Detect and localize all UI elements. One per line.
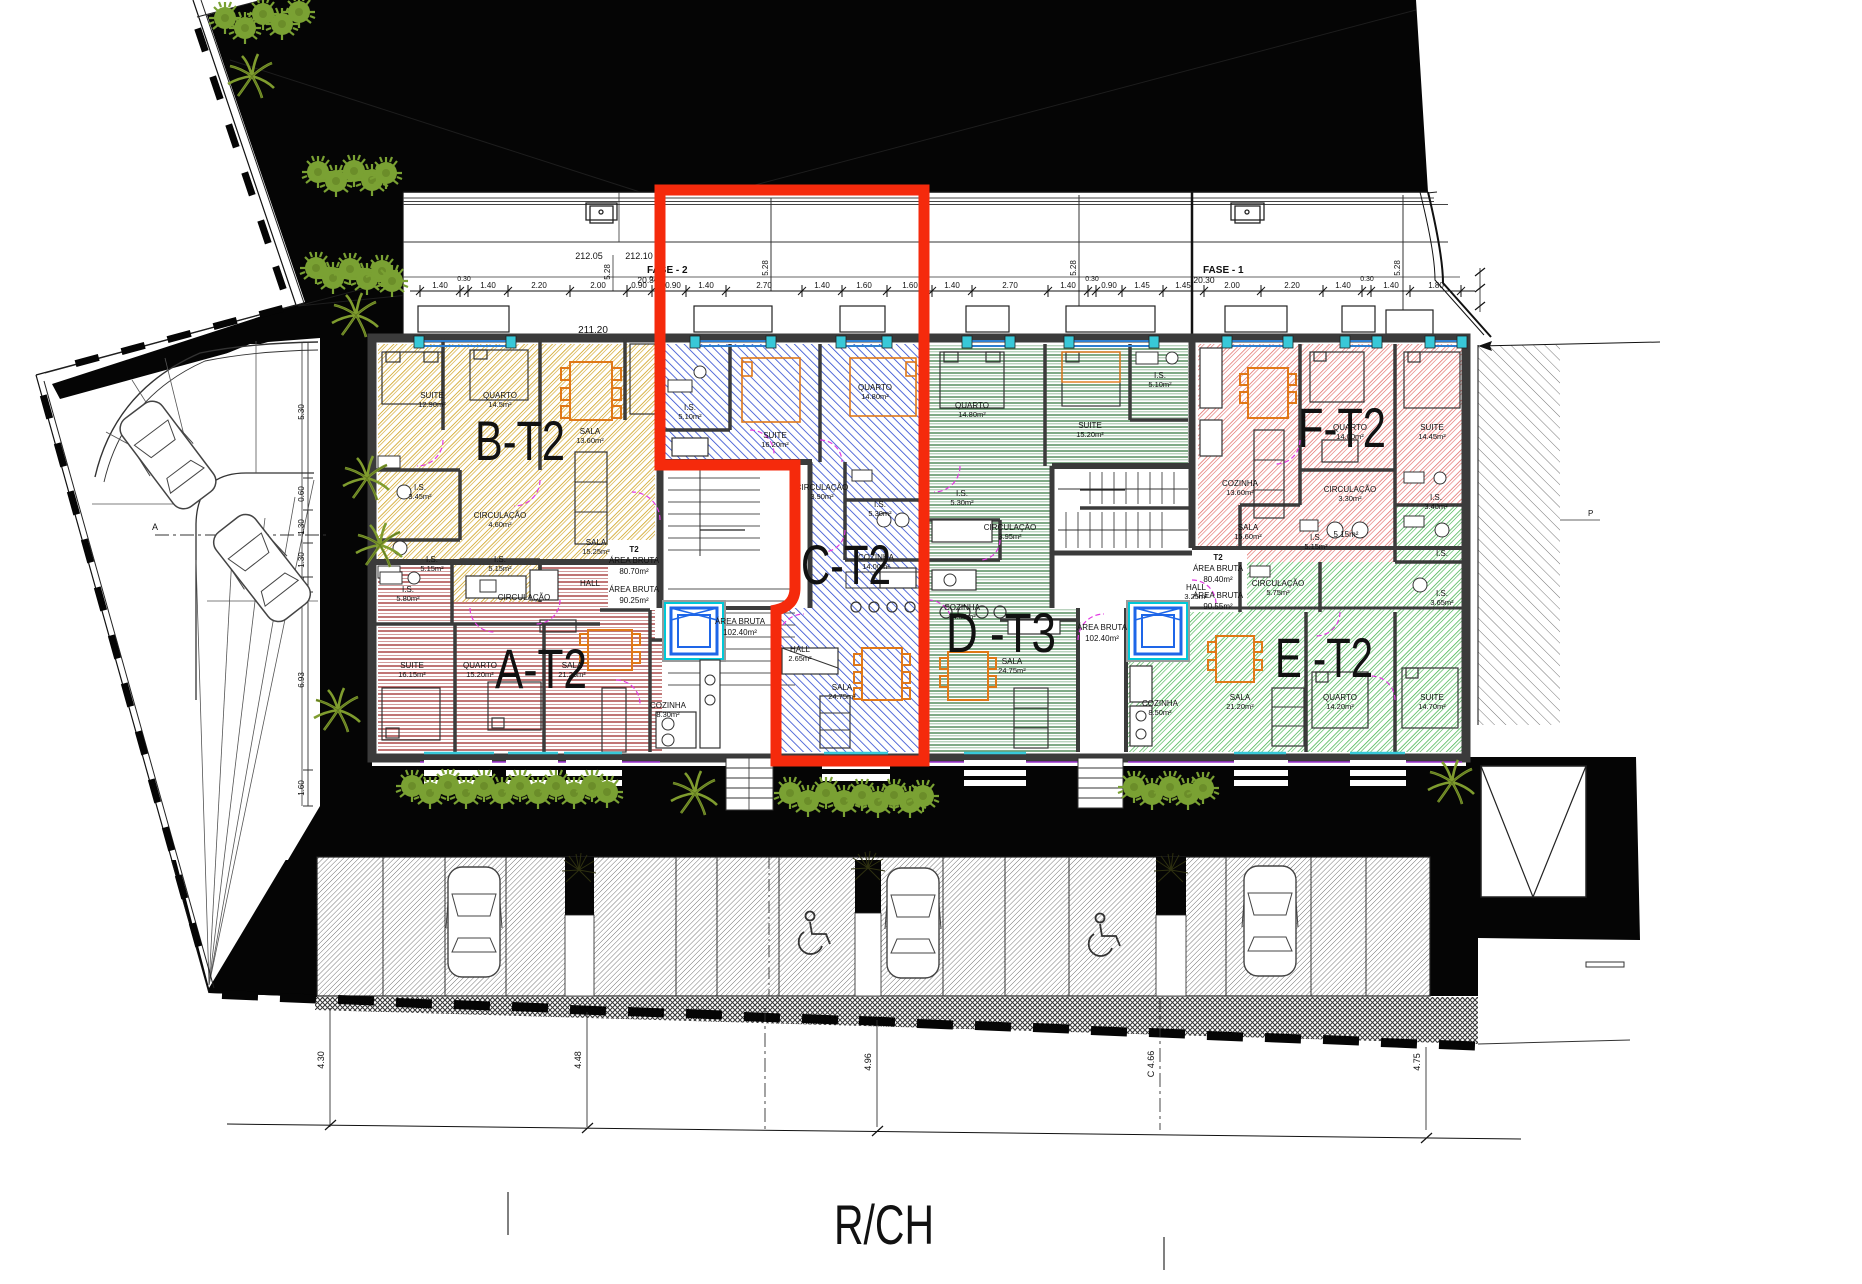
- svg-text:1.45: 1.45: [1134, 281, 1150, 290]
- svg-text:1.60: 1.60: [902, 281, 918, 290]
- svg-text:15.25m²: 15.25m²: [582, 547, 610, 556]
- svg-text:5.10m²: 5.10m²: [678, 412, 702, 421]
- svg-text:I.S.: I.S.: [684, 403, 696, 412]
- svg-text:QUARTO: QUARTO: [483, 391, 517, 400]
- svg-text:0.30: 0.30: [1085, 276, 1099, 283]
- svg-text:1.40: 1.40: [1335, 281, 1351, 290]
- svg-text:ÁREA BRUTA: ÁREA BRUTA: [715, 617, 766, 626]
- svg-text:1.40: 1.40: [814, 281, 830, 290]
- svg-text:ÁREA BRUTA: ÁREA BRUTA: [1193, 564, 1244, 573]
- svg-text:14.5m²: 14.5m²: [488, 400, 512, 409]
- svg-text:HALL: HALL: [580, 579, 601, 588]
- svg-text:1.60: 1.60: [856, 281, 872, 290]
- svg-text:4.60m²: 4.60m²: [488, 520, 512, 529]
- svg-text:1.40: 1.40: [1383, 281, 1399, 290]
- svg-text:24.75m²: 24.75m²: [828, 692, 856, 701]
- svg-text:SALA: SALA: [586, 538, 607, 547]
- svg-text:R/CH: R/CH: [834, 1193, 934, 1256]
- svg-text:212.05: 212.05: [575, 251, 603, 261]
- svg-text:1.60: 1.60: [297, 780, 306, 796]
- svg-text:3.95m²: 3.95m²: [998, 532, 1022, 541]
- svg-text:SALA: SALA: [832, 683, 853, 692]
- svg-text:CIRCULAÇÃO: CIRCULAÇÃO: [1252, 579, 1304, 588]
- svg-text:ÁREA BRUTA: ÁREA BRUTA: [609, 585, 660, 594]
- svg-text:F-T2: F-T2: [1298, 396, 1386, 459]
- svg-text:B-T2: B-T2: [475, 409, 565, 472]
- svg-text:14.70m²: 14.70m²: [1418, 702, 1446, 711]
- svg-text:14.45m²: 14.45m²: [1418, 432, 1446, 441]
- svg-text:102.40m²: 102.40m²: [723, 628, 757, 637]
- svg-text:5.30m²: 5.30m²: [950, 498, 974, 507]
- svg-text:CIRCULAÇÃO: CIRCULAÇÃO: [796, 483, 848, 492]
- svg-text:1.80: 1.80: [1428, 281, 1444, 290]
- svg-text:A: A: [152, 522, 158, 532]
- svg-text:4.30: 4.30: [316, 1051, 326, 1069]
- svg-text:24.75m²: 24.75m²: [998, 666, 1026, 675]
- svg-text:0.30: 0.30: [457, 276, 471, 283]
- svg-text:5.15m²: 5.15m²: [420, 564, 444, 573]
- svg-text:5.28: 5.28: [603, 264, 612, 280]
- svg-text:13.60m²: 13.60m²: [576, 436, 604, 445]
- svg-text:3.90m²: 3.90m²: [810, 492, 834, 501]
- svg-text:5.15m²: 5.15m²: [488, 564, 512, 573]
- svg-text:2.70: 2.70: [756, 281, 772, 290]
- svg-text:4.96: 4.96: [863, 1053, 873, 1071]
- svg-text:212.10: 212.10: [625, 251, 653, 261]
- svg-text:CIRCULAÇÃO: CIRCULAÇÃO: [498, 593, 550, 602]
- svg-text:ÁREA BRUTA: ÁREA BRUTA: [609, 556, 660, 565]
- svg-text:1.40: 1.40: [480, 281, 496, 290]
- svg-text:A-T2: A-T2: [495, 637, 587, 700]
- svg-text:21.20m²: 21.20m²: [1226, 702, 1254, 711]
- svg-text:0.90: 0.90: [1101, 281, 1117, 290]
- svg-text:QUARTO: QUARTO: [955, 401, 989, 410]
- svg-text:1.30: 1.30: [297, 552, 306, 568]
- svg-text:COZINHA: COZINHA: [1142, 699, 1179, 708]
- svg-text:5.30: 5.30: [297, 404, 306, 420]
- svg-text:SALA: SALA: [580, 427, 601, 436]
- svg-text:I.S.: I.S.: [874, 500, 886, 509]
- svg-text:QUARTO: QUARTO: [1323, 693, 1357, 702]
- svg-text:2.20: 2.20: [531, 281, 547, 290]
- svg-text:SUITE: SUITE: [1420, 693, 1444, 702]
- svg-text:2.20: 2.20: [1284, 281, 1300, 290]
- svg-text:I.S.: I.S.: [1436, 589, 1448, 598]
- svg-text:I.S.: I.S.: [402, 585, 414, 594]
- svg-text:E -T2: E -T2: [1275, 626, 1373, 689]
- svg-text:SUITE: SUITE: [763, 431, 787, 440]
- svg-text:ÁREA BRUTA: ÁREA BRUTA: [1077, 623, 1128, 632]
- svg-text:P: P: [1588, 509, 1593, 518]
- svg-text:20.30: 20.30: [1193, 275, 1215, 285]
- svg-text:3.40m²: 3.40m²: [1424, 502, 1448, 511]
- svg-text:14.80m²: 14.80m²: [958, 410, 986, 419]
- svg-text:15.20m²: 15.20m²: [466, 670, 494, 679]
- svg-text:C-T2: C-T2: [801, 533, 891, 596]
- svg-text:15.20m²: 15.20m²: [1076, 430, 1104, 439]
- svg-text:5.28: 5.28: [761, 260, 770, 276]
- svg-text:I.S.: I.S.: [1310, 533, 1322, 542]
- svg-text:16.20m²: 16.20m²: [761, 440, 789, 449]
- svg-text:8.50m²: 8.50m²: [1148, 708, 1172, 717]
- svg-text:CIRCULAÇÃO: CIRCULAÇÃO: [984, 523, 1036, 532]
- svg-text:I.S.: I.S.: [494, 555, 506, 564]
- svg-text:0.60: 0.60: [297, 486, 306, 502]
- svg-text:I.S.: I.S.: [1436, 549, 1448, 558]
- svg-text:I.S.: I.S.: [414, 483, 426, 492]
- svg-text:SUITE: SUITE: [1078, 421, 1102, 430]
- svg-text:4.48: 4.48: [573, 1051, 583, 1069]
- svg-text:COZINHA: COZINHA: [1222, 479, 1259, 488]
- svg-text:HALL: HALL: [790, 645, 811, 654]
- svg-text:80.40m²: 80.40m²: [1203, 575, 1233, 584]
- svg-text:14.20m²: 14.20m²: [1326, 702, 1354, 711]
- svg-text:102.40m²: 102.40m²: [1085, 634, 1119, 643]
- svg-text:QUARTO: QUARTO: [858, 383, 892, 392]
- svg-text:1.40: 1.40: [432, 281, 448, 290]
- svg-text:2.70: 2.70: [1002, 281, 1018, 290]
- svg-text:5.30m²: 5.30m²: [868, 509, 892, 518]
- svg-text:SALA: SALA: [1230, 693, 1251, 702]
- svg-text:I.S.: I.S.: [1430, 493, 1442, 502]
- svg-text:HALL: HALL: [1186, 583, 1207, 592]
- svg-text:2.65m²: 2.65m²: [788, 654, 812, 663]
- svg-text:1.40: 1.40: [944, 281, 960, 290]
- svg-text:90.25m²: 90.25m²: [619, 596, 649, 605]
- svg-text:CIRCULAÇÃO: CIRCULAÇÃO: [474, 511, 526, 520]
- svg-text:1.40: 1.40: [698, 281, 714, 290]
- svg-text:4.75: 4.75: [1412, 1053, 1422, 1071]
- svg-text:CIRCULAÇÃO: CIRCULAÇÃO: [1324, 485, 1376, 494]
- svg-text:D -T3: D -T3: [946, 601, 1056, 664]
- svg-text:5.28: 5.28: [1069, 260, 1078, 276]
- svg-text:15.60m²: 15.60m²: [1234, 532, 1262, 541]
- svg-text:SALA: SALA: [1238, 523, 1259, 532]
- svg-text:5.75m²: 5.75m²: [1266, 588, 1290, 597]
- svg-text:0.30: 0.30: [1360, 276, 1374, 283]
- svg-text:I.S.: I.S.: [426, 555, 438, 564]
- svg-text:I.S.: I.S.: [1154, 371, 1166, 380]
- svg-text:5.28: 5.28: [1393, 260, 1402, 276]
- svg-text:T2: T2: [629, 545, 639, 554]
- svg-text:5.15m²: 5.15m²: [1334, 530, 1359, 539]
- svg-text:3.65m²: 3.65m²: [1430, 598, 1454, 607]
- svg-text:1.30: 1.30: [297, 519, 306, 535]
- svg-text:80.70m²: 80.70m²: [619, 567, 649, 576]
- svg-text:6.93: 6.93: [297, 672, 306, 688]
- svg-text:5.15m²: 5.15m²: [1304, 542, 1328, 551]
- svg-text:3.45m²: 3.45m²: [408, 492, 432, 501]
- svg-text:SUITE: SUITE: [1420, 423, 1444, 432]
- svg-text:COZINHA: COZINHA: [650, 701, 687, 710]
- svg-text:2.00: 2.00: [1224, 281, 1240, 290]
- svg-text:0.90: 0.90: [631, 281, 647, 290]
- svg-text:T2: T2: [1213, 553, 1223, 562]
- svg-text:2.00: 2.00: [590, 281, 606, 290]
- svg-text:13.60m²: 13.60m²: [1226, 488, 1254, 497]
- svg-text:C 4.66: C 4.66: [1146, 1051, 1156, 1078]
- svg-text:14.80m²: 14.80m²: [861, 392, 889, 401]
- svg-text:16.15m²: 16.15m²: [398, 670, 426, 679]
- svg-text:1.40: 1.40: [1060, 281, 1076, 290]
- svg-text:8.30m²: 8.30m²: [656, 710, 680, 719]
- svg-text:SUITE: SUITE: [400, 661, 424, 670]
- svg-text:1.45: 1.45: [1175, 281, 1191, 290]
- svg-text:5.80m²: 5.80m²: [396, 594, 420, 603]
- svg-text:QUARTO: QUARTO: [463, 661, 497, 670]
- svg-text:5.10m²: 5.10m²: [1148, 380, 1172, 389]
- svg-text:90.55m²: 90.55m²: [1203, 602, 1233, 611]
- svg-text:12.90m²: 12.90m²: [418, 400, 446, 409]
- svg-text:0.90: 0.90: [665, 281, 681, 290]
- svg-text:I.S.: I.S.: [956, 489, 968, 498]
- svg-text:3.30m²: 3.30m²: [1338, 494, 1362, 503]
- svg-text:SUITE: SUITE: [420, 391, 444, 400]
- svg-text:3.25m²: 3.25m²: [1184, 592, 1208, 601]
